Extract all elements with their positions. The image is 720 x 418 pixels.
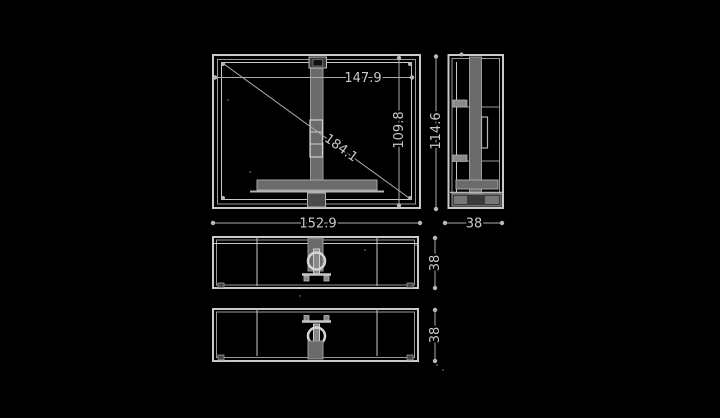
side-shelf-lower [453,155,467,162]
dim-screen-diagonal: 184.1 [321,131,360,165]
top-stand-bracket [302,275,331,282]
dimension-overall-width: 152.9 [211,217,422,232]
dimension-top-depth: 38 [428,236,443,290]
top-notch-left [218,283,224,288]
side-shelf-upper [453,100,467,107]
dimension-bottom-depth: 38 [428,308,443,363]
stand-base-bar [257,180,377,190]
dimension-side-depth: 38 [443,217,504,232]
side-top-dot [460,53,464,57]
dim-screen-height-label: 109.8 [392,111,407,148]
side-bracket [482,117,488,148]
dim-screen-width-label: 147.9 [344,71,381,86]
side-stand-bar [456,180,498,189]
dim-side-depth-label: 38 [466,217,483,232]
stand-foot [308,193,326,207]
drawing-canvas: 184.1 147.9 109.8 114.6 152.9 [0,0,720,418]
dim-overall-width-label: 152.9 [299,217,336,232]
dim-overall-height-label: 114.6 [429,112,444,149]
dim-bottom-depth-label: 38 [428,327,443,344]
bottom-stand-bracket [302,316,331,322]
bottom-view [213,309,418,361]
dim-top-depth-label: 38 [428,255,443,272]
tv-dimension-drawing: 184.1 147.9 109.8 114.6 152.9 [0,0,720,418]
dimension-overall-height: 114.6 [429,54,444,211]
side-view [449,53,504,209]
side-base-pad-right [485,196,499,204]
top-notch-right [407,283,413,288]
mount-top-bracket-inner [313,60,323,67]
side-base-pad-left [454,196,467,204]
bottom-notch-right [407,355,413,360]
bottom-notch-left [218,355,224,360]
bottom-mount-column [308,341,323,359]
dimension-screen-height: 109.8 [392,56,407,208]
top-view [213,237,418,288]
